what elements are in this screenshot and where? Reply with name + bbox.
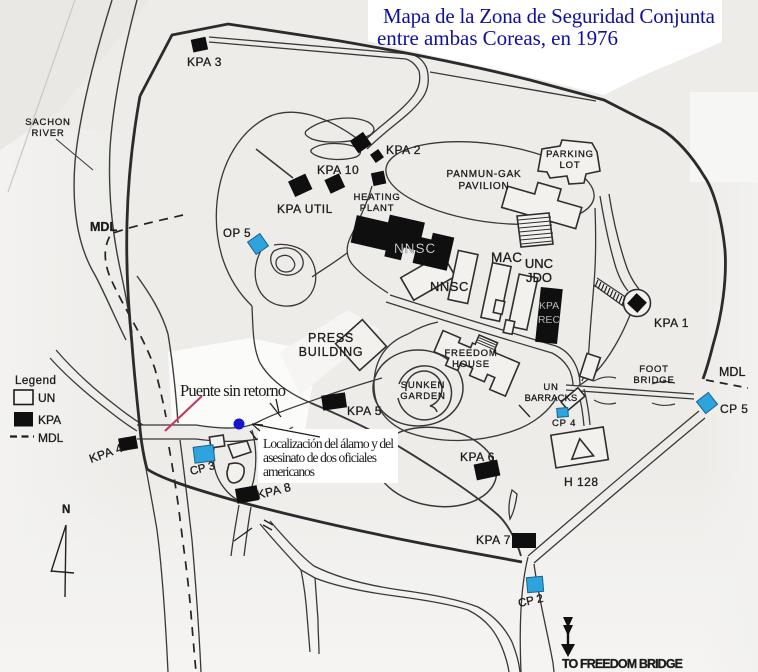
svg-text:PAVILION: PAVILION xyxy=(458,181,509,192)
svg-text:MAC: MAC xyxy=(491,250,523,265)
svg-text:Mapa de la Zona de Seguridad C: Mapa de la Zona de Seguridad Conjunta xyxy=(383,4,716,28)
svg-text:KPA 5: KPA 5 xyxy=(347,404,382,418)
svg-text:HOUSE: HOUSE xyxy=(452,359,490,370)
svg-text:MDL: MDL xyxy=(38,431,64,445)
svg-text:BARRACKS: BARRACKS xyxy=(525,393,578,403)
svg-text:CP 4: CP 4 xyxy=(552,418,576,429)
svg-text:Localización del álamo y del: Localización del álamo y del xyxy=(263,436,394,451)
svg-text:SACHON: SACHON xyxy=(25,117,70,128)
svg-text:BRIDGE: BRIDGE xyxy=(633,375,674,386)
svg-text:asesinato de dos oficiales: asesinato de dos oficiales xyxy=(263,450,377,465)
svg-text:OP 5: OP 5 xyxy=(223,228,251,240)
svg-text:BUILDING: BUILDING xyxy=(299,345,364,359)
svg-text:NNSC: NNSC xyxy=(394,241,436,256)
svg-text:UN: UN xyxy=(543,382,558,393)
svg-text:FOOT: FOOT xyxy=(639,364,669,375)
svg-text:TO FREEDOM BRIDGE: TO FREEDOM BRIDGE xyxy=(562,657,683,671)
svg-text:PRESS: PRESS xyxy=(308,331,354,345)
svg-text:MDL: MDL xyxy=(90,220,117,234)
svg-text:PARKING: PARKING xyxy=(546,149,594,160)
svg-text:KPA: KPA xyxy=(38,413,61,427)
svg-text:KPA: KPA xyxy=(539,300,559,312)
svg-text:KPA 7: KPA 7 xyxy=(476,533,511,547)
svg-text:Legend: Legend xyxy=(15,375,56,387)
svg-text:HEATING: HEATING xyxy=(353,192,400,203)
svg-text:H 128: H 128 xyxy=(564,475,599,489)
svg-text:REC: REC xyxy=(538,314,561,326)
svg-text:KPA 3: KPA 3 xyxy=(187,55,222,69)
svg-text:UN: UN xyxy=(38,391,55,405)
svg-text:entre ambas Coreas, en 1976: entre ambas Coreas, en 1976 xyxy=(377,26,618,50)
svg-text:Puente sin retorno: Puente sin retorno xyxy=(180,381,286,400)
svg-text:UNC: UNC xyxy=(525,256,553,271)
svg-text:KPA 2: KPA 2 xyxy=(386,143,421,157)
svg-text:N: N xyxy=(62,504,70,516)
svg-text:JDO: JDO xyxy=(526,270,552,285)
svg-text:FREEDOM: FREEDOM xyxy=(444,348,497,359)
svg-text:CP 5: CP 5 xyxy=(720,402,748,416)
svg-text:KPA UTIL: KPA UTIL xyxy=(277,202,333,216)
svg-text:KPA 6: KPA 6 xyxy=(460,450,495,464)
svg-text:PLANT: PLANT xyxy=(360,203,395,214)
svg-text:SUNKEN: SUNKEN xyxy=(401,380,445,391)
svg-text:MDL: MDL xyxy=(719,365,745,379)
svg-text:LOT: LOT xyxy=(560,160,581,171)
svg-text:KPA 10: KPA 10 xyxy=(317,163,359,177)
svg-text:americanos: americanos xyxy=(263,464,315,479)
svg-text:GARDEN: GARDEN xyxy=(400,391,445,402)
svg-text:NNSC: NNSC xyxy=(430,279,469,294)
svg-text:RIVER: RIVER xyxy=(31,128,64,139)
svg-text:KPA 1: KPA 1 xyxy=(654,316,689,330)
svg-text:PANMUN-GAK: PANMUN-GAK xyxy=(446,169,521,180)
